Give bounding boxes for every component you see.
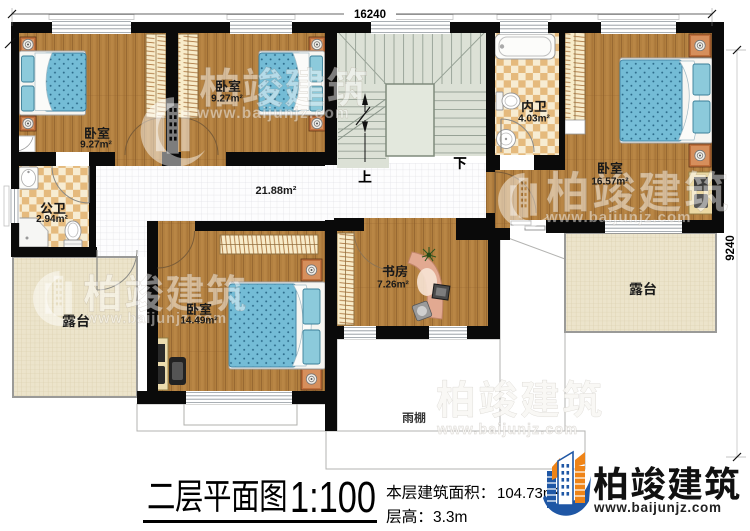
svg-text:9240: 9240 — [725, 235, 737, 261]
svg-text:4.03m²: 4.03m² — [518, 114, 550, 125]
svg-text:9.27m²: 9.27m² — [80, 140, 112, 151]
svg-text:7.26m²: 7.26m² — [377, 280, 409, 291]
svg-text:3.3m: 3.3m — [433, 509, 467, 526]
svg-text:14.49m²: 14.49m² — [180, 316, 218, 327]
svg-text:www.baijunjz.com: www.baijunjz.com — [593, 500, 722, 515]
svg-text:16240: 16240 — [354, 9, 386, 21]
svg-text:16.57m²: 16.57m² — [591, 177, 629, 188]
svg-text:www.baijunjz.com: www.baijunjz.com — [196, 105, 350, 122]
svg-text:2.94m²: 2.94m² — [36, 214, 68, 225]
svg-text:1:100: 1:100 — [290, 473, 376, 522]
svg-text:www.baijunjz.com: www.baijunjz.com — [545, 209, 691, 226]
svg-text:9.27m²: 9.27m² — [211, 94, 243, 105]
svg-text:www.baijunjz.com: www.baijunjz.com — [436, 422, 578, 438]
svg-text:21.88m²: 21.88m² — [256, 185, 297, 197]
